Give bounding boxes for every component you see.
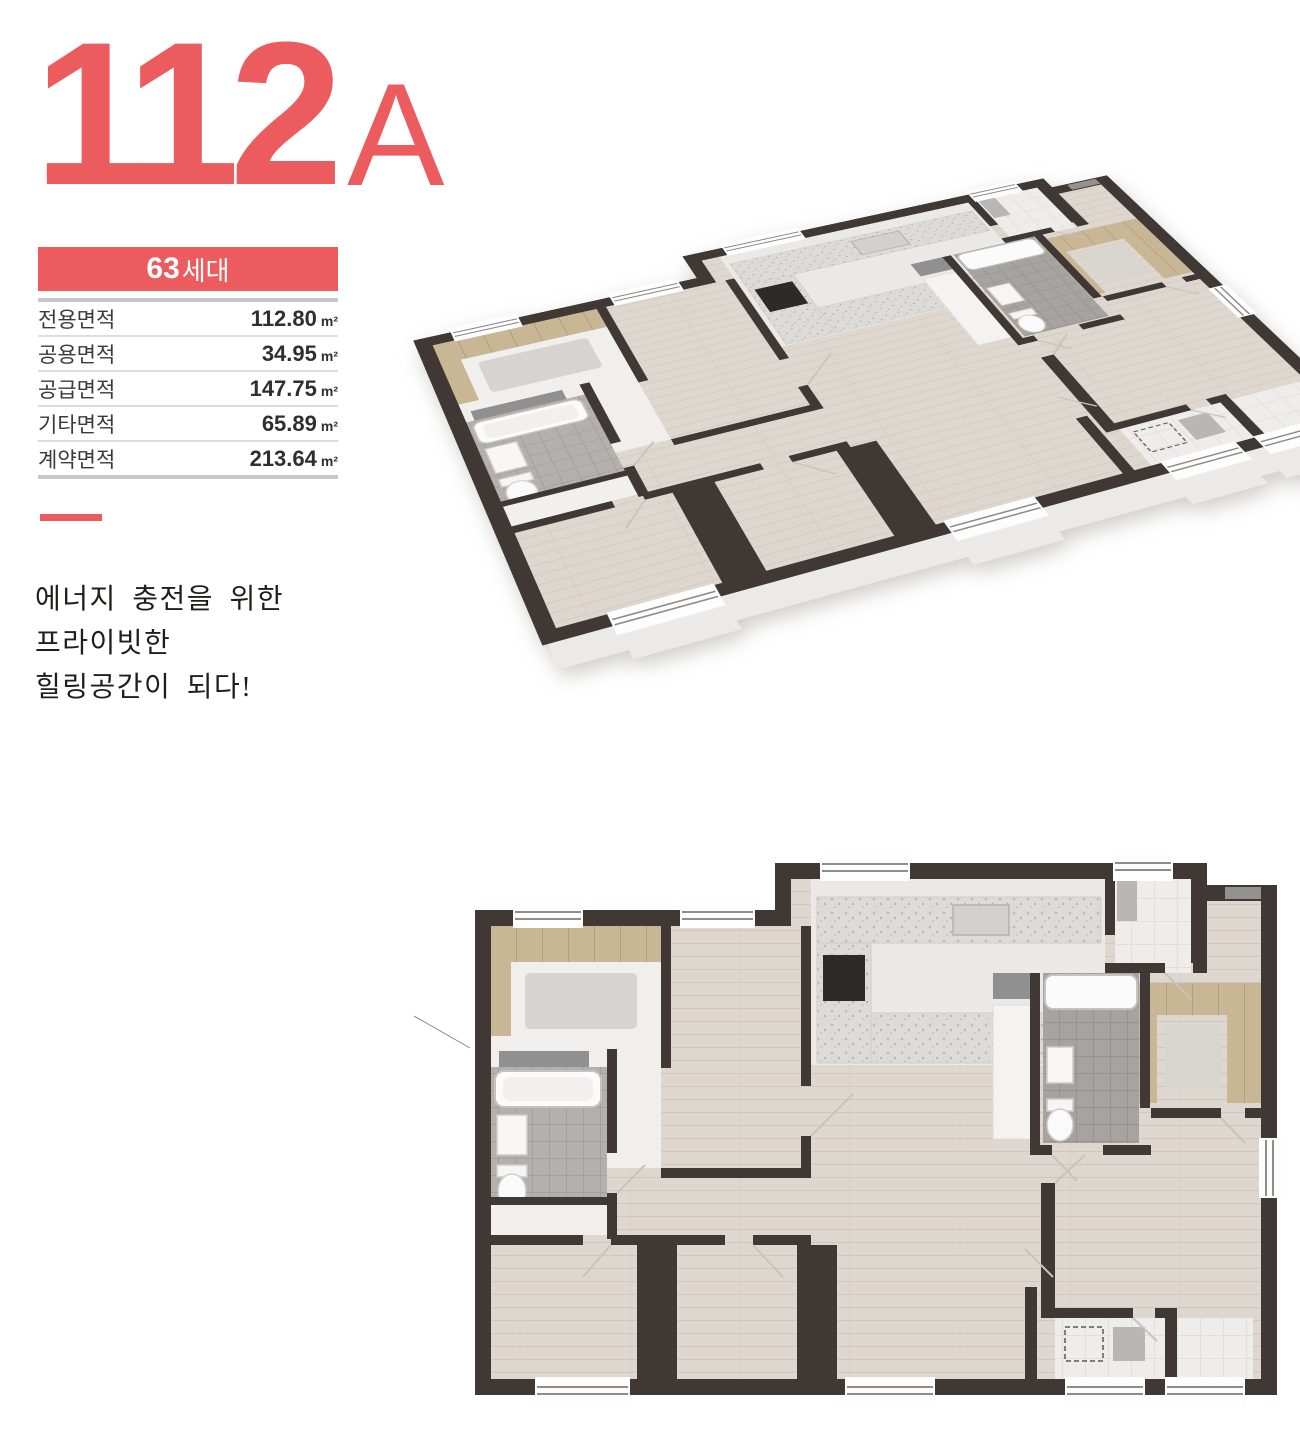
area-rows: 전용면적 112.80m² 공용면적 34.95m² 공급면적 147.75m²…: [38, 298, 338, 479]
area-label: 공용면적: [38, 339, 218, 369]
area-unit: m²: [321, 348, 338, 364]
household-count: 63: [146, 252, 179, 286]
area-value: 112.80: [251, 306, 317, 332]
area-unit: m²: [321, 418, 338, 434]
area-value: 147.75: [250, 376, 317, 402]
area-unit: m²: [321, 383, 338, 399]
tagline-line: 힐링공간이 되다!: [35, 666, 284, 710]
tagline: 에너지 충전을 위한 프라이빗한 힐링공간이 되다!: [35, 578, 284, 710]
tagline-line: 프라이빗한: [35, 622, 284, 666]
households-header: 63 세대: [38, 247, 338, 291]
table-row: 계약면적 213.64m²: [38, 442, 338, 475]
unit-type-badge: 112 A: [34, 8, 445, 220]
area-unit: m²: [321, 453, 338, 469]
tagline-line: 에너지 충전을 위한: [35, 578, 284, 622]
area-label: 전용면적: [38, 304, 218, 334]
isometric-floor-plan: [450, 15, 1290, 715]
isometric-floor-plan-svg: [391, 161, 1300, 674]
table-row: 공급면적 147.75m²: [38, 372, 338, 407]
area-label: 계약면적: [38, 444, 218, 474]
area-value: 34.95: [262, 341, 317, 367]
area-summary-table: 63 세대 전용면적 112.80m² 공용면적 34.95m² 공급면적 14…: [38, 247, 338, 479]
accent-dash: [40, 514, 102, 521]
area-unit: m²: [321, 313, 338, 329]
unit-number: 112: [34, 8, 333, 220]
area-label: 공급면적: [38, 374, 218, 404]
top-down-floor-plan: [465, 853, 1285, 1428]
household-count-suffix: 세대: [182, 251, 230, 288]
table-row: 공용면적 34.95m²: [38, 337, 338, 372]
table-row: 전용면적 112.80m²: [38, 302, 338, 337]
unit-type-letter: A: [347, 62, 444, 208]
area-value: 65.89: [262, 411, 317, 437]
area-value: 213.64: [250, 446, 317, 472]
area-label: 기타면적: [38, 409, 218, 439]
table-row: 기타면적 65.89m²: [38, 407, 338, 442]
